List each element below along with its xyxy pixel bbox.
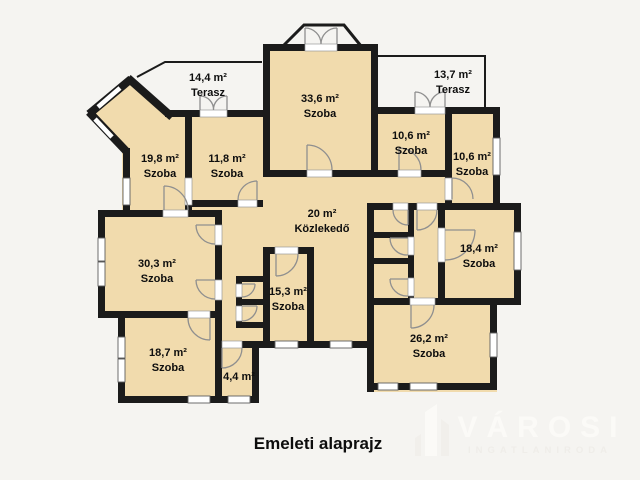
label-terasz-13-7-area: 13,7 m² [434,69,472,81]
watermark-brand-name: VÁROSI [457,410,626,444]
window-18-7-west-1 [118,337,125,358]
label-terasz-14-4-type: Terasz [191,87,226,99]
label-szoba-15-3-area: 15,3 m² [269,286,307,298]
label-kozlekedo-area: 20 m² [308,208,337,220]
window-26-2-south-2 [410,383,437,390]
hallway-area [263,177,374,348]
label-szoba-26-2-area: 26,2 m² [410,333,448,345]
varosi-logo-icon [415,404,449,456]
page-title: Emeleti alaprajz [254,434,383,453]
label-szoba-18-4-area: 18,4 m² [460,243,498,255]
label-szoba-4-4-area: 4,4 m² [223,371,255,383]
label-szoba-19-8-area: 19,8 m² [141,153,179,165]
label-kozlekedo-type: Közlekedő [294,223,349,235]
label-szoba-10-6-left-area: 10,6 m² [392,130,430,142]
window-30-3-west-1 [98,238,105,261]
label-szoba-18-7-area: 18,7 m² [149,347,187,359]
window-18-7-west-2 [118,359,125,382]
label-szoba-30-3-type: Szoba [141,273,174,285]
double-door-bay [305,28,337,44]
label-szoba-26-2-type: Szoba [413,348,446,360]
label-szoba-30-3-area: 30,3 m² [138,258,176,270]
room-szoba-26-2 [367,298,497,392]
window-26-2-south-1 [378,383,398,390]
window-26-2-east [490,333,497,357]
floor-plan-drawing: 14,4 m² Terasz 13,7 m² Terasz 33,6 m² Sz… [0,0,640,480]
label-szoba-33-6-area: 33,6 m² [301,93,339,105]
window-hall-south [330,341,352,348]
label-szoba-10-6-right-type: Szoba [456,166,489,178]
label-szoba-10-6-left-type: Szoba [395,145,428,157]
label-terasz-14-4-area: 14,4 m² [189,72,227,84]
label-szoba-19-8-type: Szoba [144,168,177,180]
label-szoba-18-7-type: Szoba [152,362,185,374]
watermark: VÁROSI INGATLANIRODA [415,404,627,456]
window-30-3-west-2 [98,262,105,286]
label-szoba-33-6-type: Szoba [304,108,337,120]
window-4-4-south [228,396,250,403]
window-15-3-south [275,341,298,348]
entrance-bay-outline [283,25,361,46]
label-szoba-11-8-type: Szoba [211,168,244,180]
window-18-4-east [514,232,521,270]
watermark-brand-subtitle: INGATLANIRODA [468,445,612,456]
utility-rooms-area [367,177,445,305]
window-18-7-south [188,396,210,403]
label-szoba-15-3-type: Szoba [272,301,305,313]
label-szoba-11-8-area: 11,8 m² [208,153,246,165]
label-szoba-18-4-type: Szoba [463,258,496,270]
window-19-8-west [123,178,130,205]
window-10-6-east [493,138,500,175]
label-szoba-10-6-right-area: 10,6 m² [453,151,491,163]
label-terasz-13-7-type: Terasz [436,84,471,96]
floor-plan-page: 14,4 m² Terasz 13,7 m² Terasz 33,6 m² Sz… [0,0,640,480]
